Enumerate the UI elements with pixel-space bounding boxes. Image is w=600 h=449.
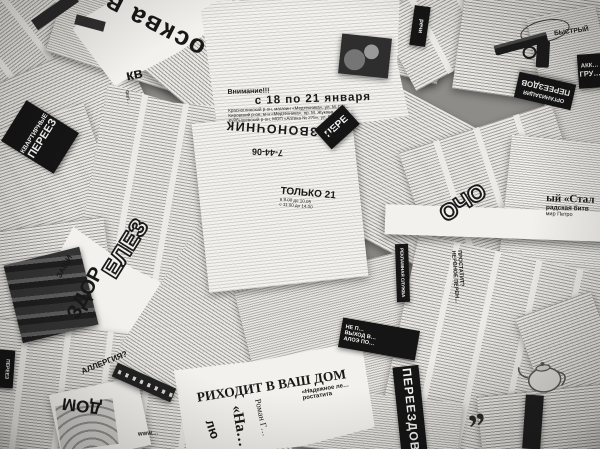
pistol-grip (536, 40, 550, 68)
newspaper-collage-photo: КВАРТИРНЫЕ ПЕРЕЕЗ ПЕРЕ речи АКК… ГРУ… ОР… (0, 0, 600, 449)
label-line: ПЕРЕЕЗ (2, 359, 9, 379)
label-line: ПЕРЕЕЗДОВ (399, 368, 421, 449)
label-line: ГРУ… (579, 69, 600, 79)
label-line: РЕКЛАМНАЯ СЛУЖБА (399, 248, 406, 298)
phone-inverted: 7-44-06 (252, 146, 284, 158)
kv-fragment: кв (124, 64, 144, 84)
teapot-illustration (511, 346, 575, 404)
sewing-machine-photo (338, 33, 392, 78)
reklama-strip: РЕКЛАМНАЯ СЛУЖБА (395, 244, 410, 302)
attention-block: Внимание!!! с 18 по 21 января Красноглин… (227, 83, 398, 123)
pereez-edge-label: ПЕРЕЕЗ (0, 349, 15, 388)
label-line: речи (416, 19, 425, 34)
stalingrad-block: ый «Стал радская битв мир Петро (546, 192, 595, 219)
gruz-label: АКК… ГРУ… (577, 53, 600, 89)
